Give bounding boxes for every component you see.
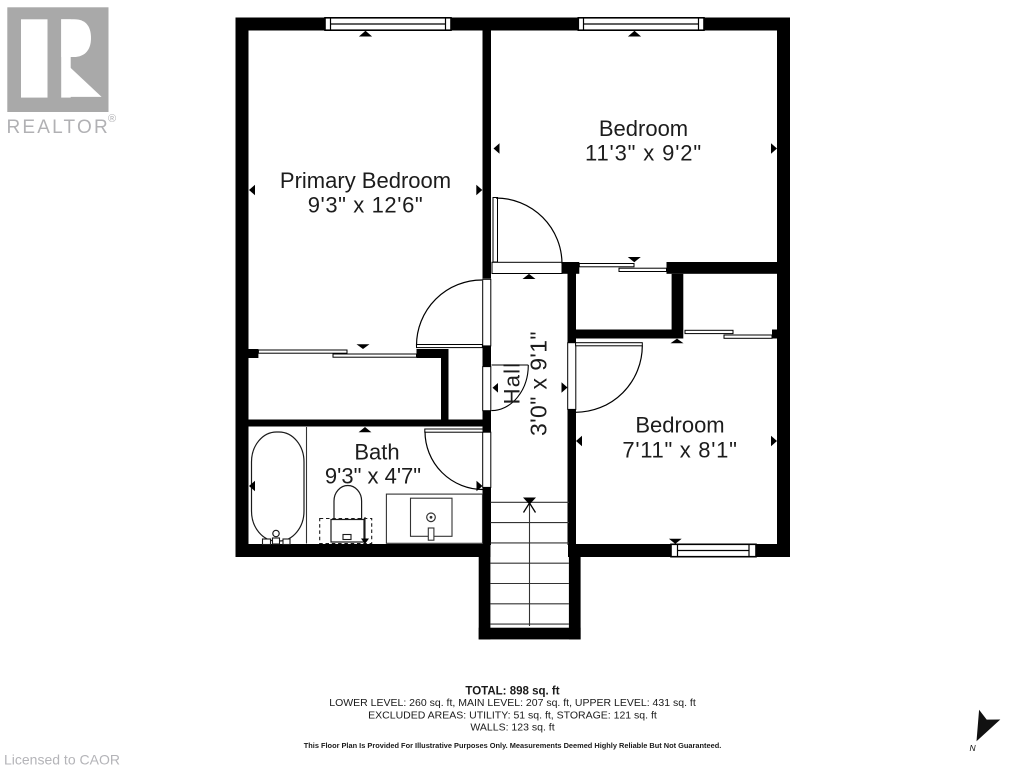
svg-text:3'0" x 9'1": 3'0" x 9'1" <box>526 331 552 436</box>
svg-text:Hall: Hall <box>500 362 525 405</box>
svg-text:Bath: Bath <box>354 440 399 465</box>
svg-text:WALLS: 123 sq. ft: WALLS: 123 sq. ft <box>470 722 554 734</box>
svg-text:9'3" x 12'6": 9'3" x 12'6" <box>308 192 424 217</box>
svg-text:REALTOR: REALTOR <box>7 117 110 138</box>
svg-text:Bedroom: Bedroom <box>635 413 724 438</box>
svg-text:Primary Bedroom: Primary Bedroom <box>280 168 451 193</box>
svg-text:N: N <box>970 743 977 753</box>
svg-text:EXCLUDED AREAS: UTILITY: 51 sq: EXCLUDED AREAS: UTILITY: 51 sq. ft, STOR… <box>368 709 657 721</box>
svg-text:Licensed to CAOR: Licensed to CAOR <box>4 752 120 768</box>
svg-text:LOWER LEVEL: 260 sq. ft, MAIN: LOWER LEVEL: 260 sq. ft, MAIN LEVEL: 207… <box>329 697 696 709</box>
svg-text:®: ® <box>108 113 116 125</box>
svg-text:This Floor Plan Is Provided Fo: This Floor Plan Is Provided For Illustra… <box>304 741 722 750</box>
svg-text:7'11" x 8'1": 7'11" x 8'1" <box>622 437 737 462</box>
svg-text:Bedroom: Bedroom <box>599 116 688 141</box>
svg-text:9'3" x 4'7": 9'3" x 4'7" <box>325 464 421 489</box>
svg-text:11'3" x 9'2": 11'3" x 9'2" <box>585 140 702 165</box>
svg-text:TOTAL: 898 sq. ft: TOTAL: 898 sq. ft <box>465 686 559 698</box>
